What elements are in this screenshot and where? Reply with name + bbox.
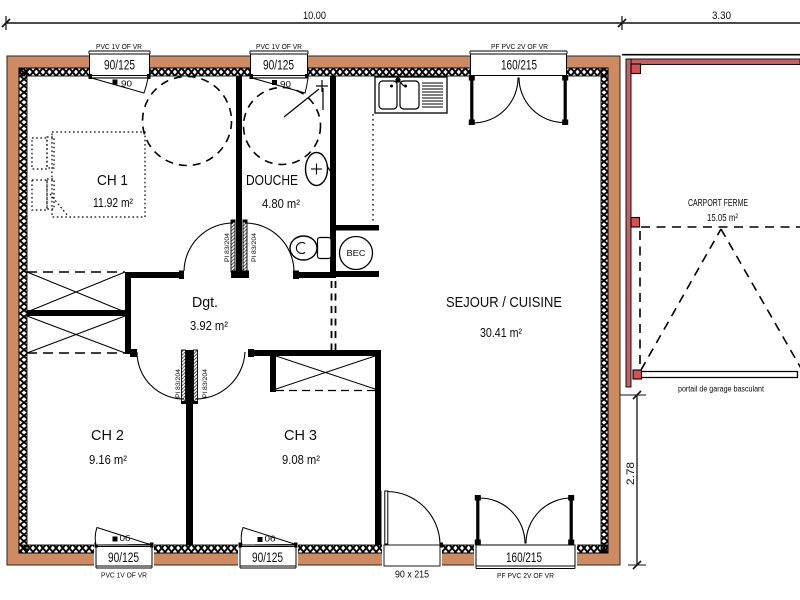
svg-text:Pl 83/204: Pl 83/204 xyxy=(175,368,182,398)
svg-text:PVC 1V OF VR: PVC 1V OF VR xyxy=(96,42,143,51)
svg-text:90: 90 xyxy=(121,80,133,89)
svg-text:DOUCHE: DOUCHE xyxy=(246,172,298,189)
svg-text:Pl 83/204: Pl 83/204 xyxy=(251,232,258,262)
svg-text:30.41 m²: 30.41 m² xyxy=(480,325,523,340)
svg-text:15.05 m²: 15.05 m² xyxy=(707,212,738,224)
svg-text:Pl 83/204: Pl 83/204 xyxy=(202,368,209,398)
svg-text:90/125: 90/125 xyxy=(104,58,135,73)
svg-text:Dgt.: Dgt. xyxy=(192,294,218,311)
svg-text:3.92 m²: 3.92 m² xyxy=(190,318,229,333)
svg-text:10.00: 10.00 xyxy=(303,10,326,22)
svg-text:160/215: 160/215 xyxy=(501,58,537,73)
svg-text:CH 2: CH 2 xyxy=(91,427,124,444)
svg-text:BEC: BEC xyxy=(347,248,366,258)
svg-text:3.30: 3.30 xyxy=(712,10,731,22)
svg-text:CH 1: CH 1 xyxy=(97,172,128,189)
svg-text:90: 90 xyxy=(264,534,276,543)
svg-text:PF PVC 2V OF VR: PF PVC 2V OF VR xyxy=(497,571,555,580)
svg-text:90 x 215: 90 x 215 xyxy=(395,570,429,581)
svg-text:90/125: 90/125 xyxy=(263,58,294,73)
svg-text:2.78: 2.78 xyxy=(625,462,637,485)
svg-text:9.16 m²: 9.16 m² xyxy=(89,452,128,467)
svg-text:9.08 m²: 9.08 m² xyxy=(282,452,321,467)
svg-text:PF PVC 2V OF VR: PF PVC 2V OF VR xyxy=(491,42,549,51)
svg-text:CARPORT FERME: CARPORT FERME xyxy=(688,198,748,209)
svg-text:portail de garage basculant: portail de garage basculant xyxy=(678,385,765,394)
svg-text:SEJOUR / CUISINE: SEJOUR / CUISINE xyxy=(446,294,562,311)
svg-text:11.92 m²: 11.92 m² xyxy=(93,195,134,210)
svg-text:4.80 m²: 4.80 m² xyxy=(262,196,301,211)
svg-text:PVC 1V OF VR: PVC 1V OF VR xyxy=(256,42,303,51)
svg-text:Pl 83/204: Pl 83/204 xyxy=(224,232,231,262)
svg-text:160/215: 160/215 xyxy=(506,550,542,565)
svg-text:PVC 1V OF VR: PVC 1V OF VR xyxy=(101,571,148,580)
svg-text:90: 90 xyxy=(119,533,131,542)
svg-text:CH 3: CH 3 xyxy=(284,427,317,444)
svg-text:90/125: 90/125 xyxy=(252,550,283,565)
svg-text:90/125: 90/125 xyxy=(108,550,139,565)
